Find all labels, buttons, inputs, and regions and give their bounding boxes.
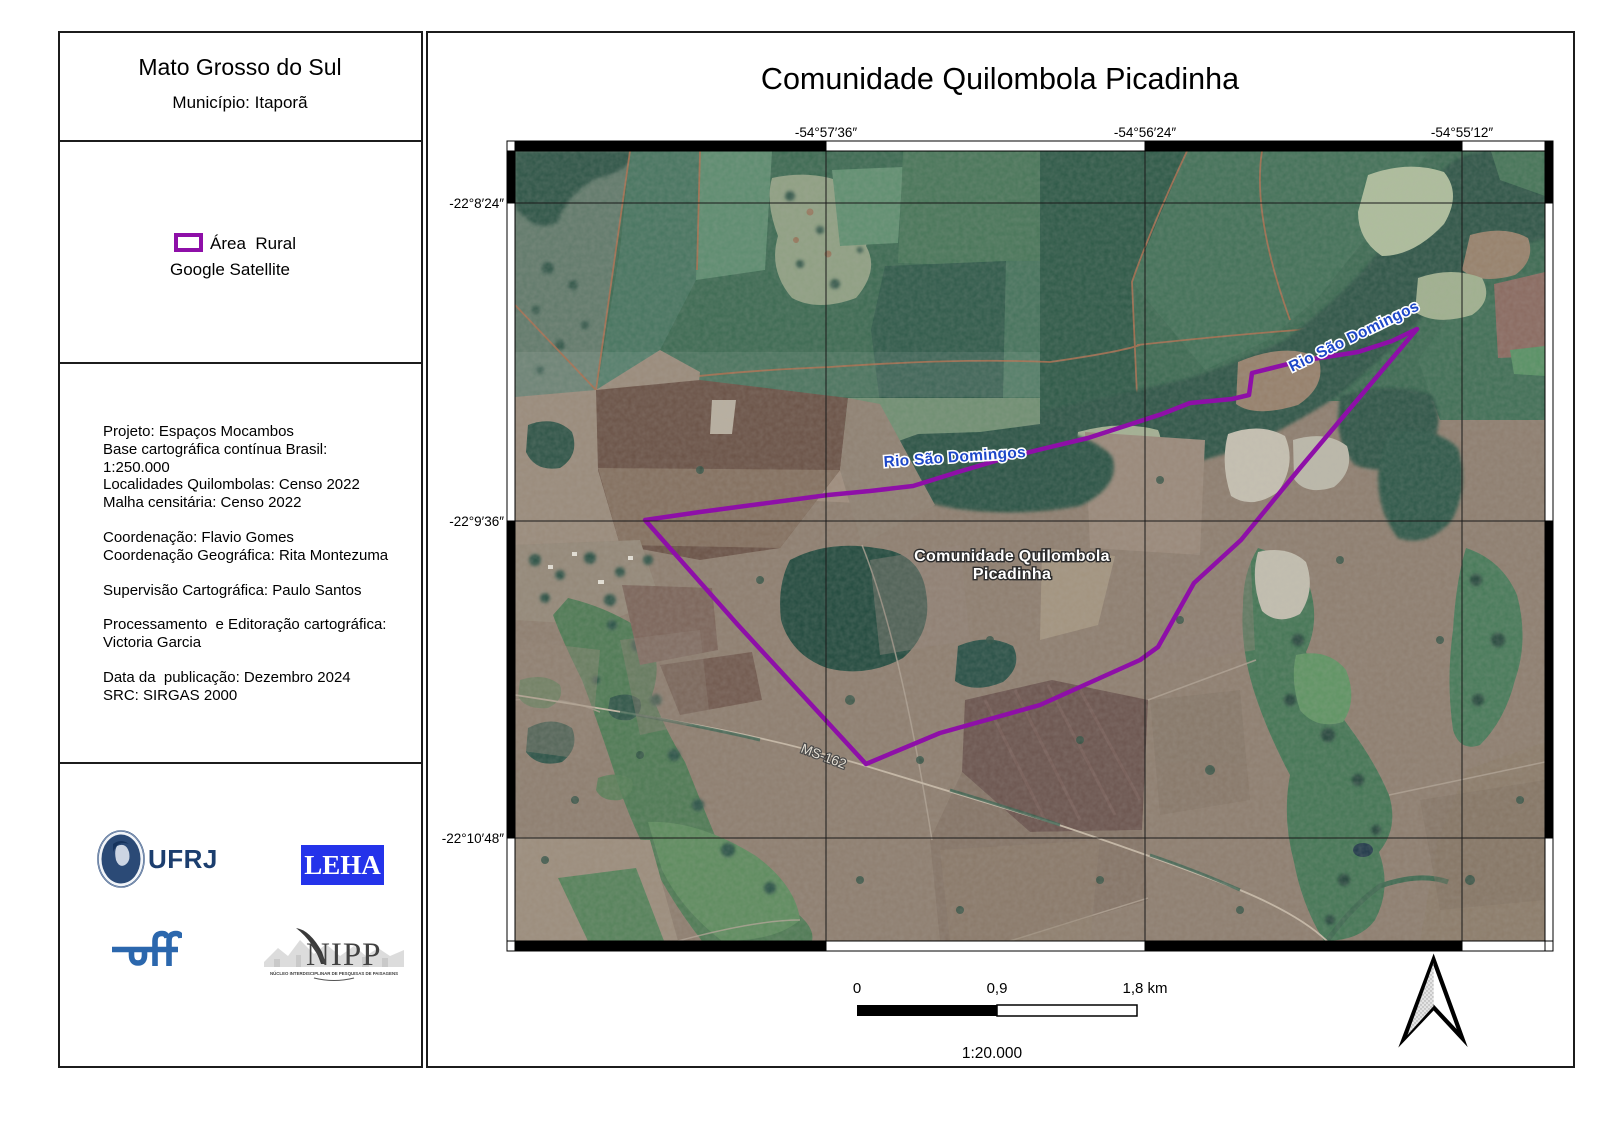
- svg-text:NIPP: NIPP: [306, 937, 382, 973]
- svg-text:-54°56′24″: -54°56′24″: [1114, 125, 1176, 140]
- svg-text:Comunidade Quilombola: Comunidade Quilombola: [914, 548, 1110, 565]
- svg-text:UFRJ: UFRJ: [148, 844, 218, 874]
- svg-text:0,9: 0,9: [987, 980, 1008, 997]
- svg-text:-22°9′36″: -22°9′36″: [449, 514, 504, 529]
- svg-text:-54°55′12″: -54°55′12″: [1431, 125, 1493, 140]
- svg-text:-22°10′48″: -22°10′48″: [442, 831, 504, 846]
- svg-text:1,8 km: 1,8 km: [1122, 980, 1167, 997]
- svg-text:-22°8′24″: -22°8′24″: [449, 196, 504, 211]
- svg-text:Picadinha: Picadinha: [973, 566, 1051, 583]
- svg-text:-54°57′36″: -54°57′36″: [795, 125, 857, 140]
- svg-text:1:20.000: 1:20.000: [962, 1045, 1023, 1062]
- svg-text:NÚCLEO INTERDISCIPLINAR DE PES: NÚCLEO INTERDISCIPLINAR DE PESQUISAS DE …: [270, 970, 399, 977]
- svg-text:0: 0: [853, 980, 861, 997]
